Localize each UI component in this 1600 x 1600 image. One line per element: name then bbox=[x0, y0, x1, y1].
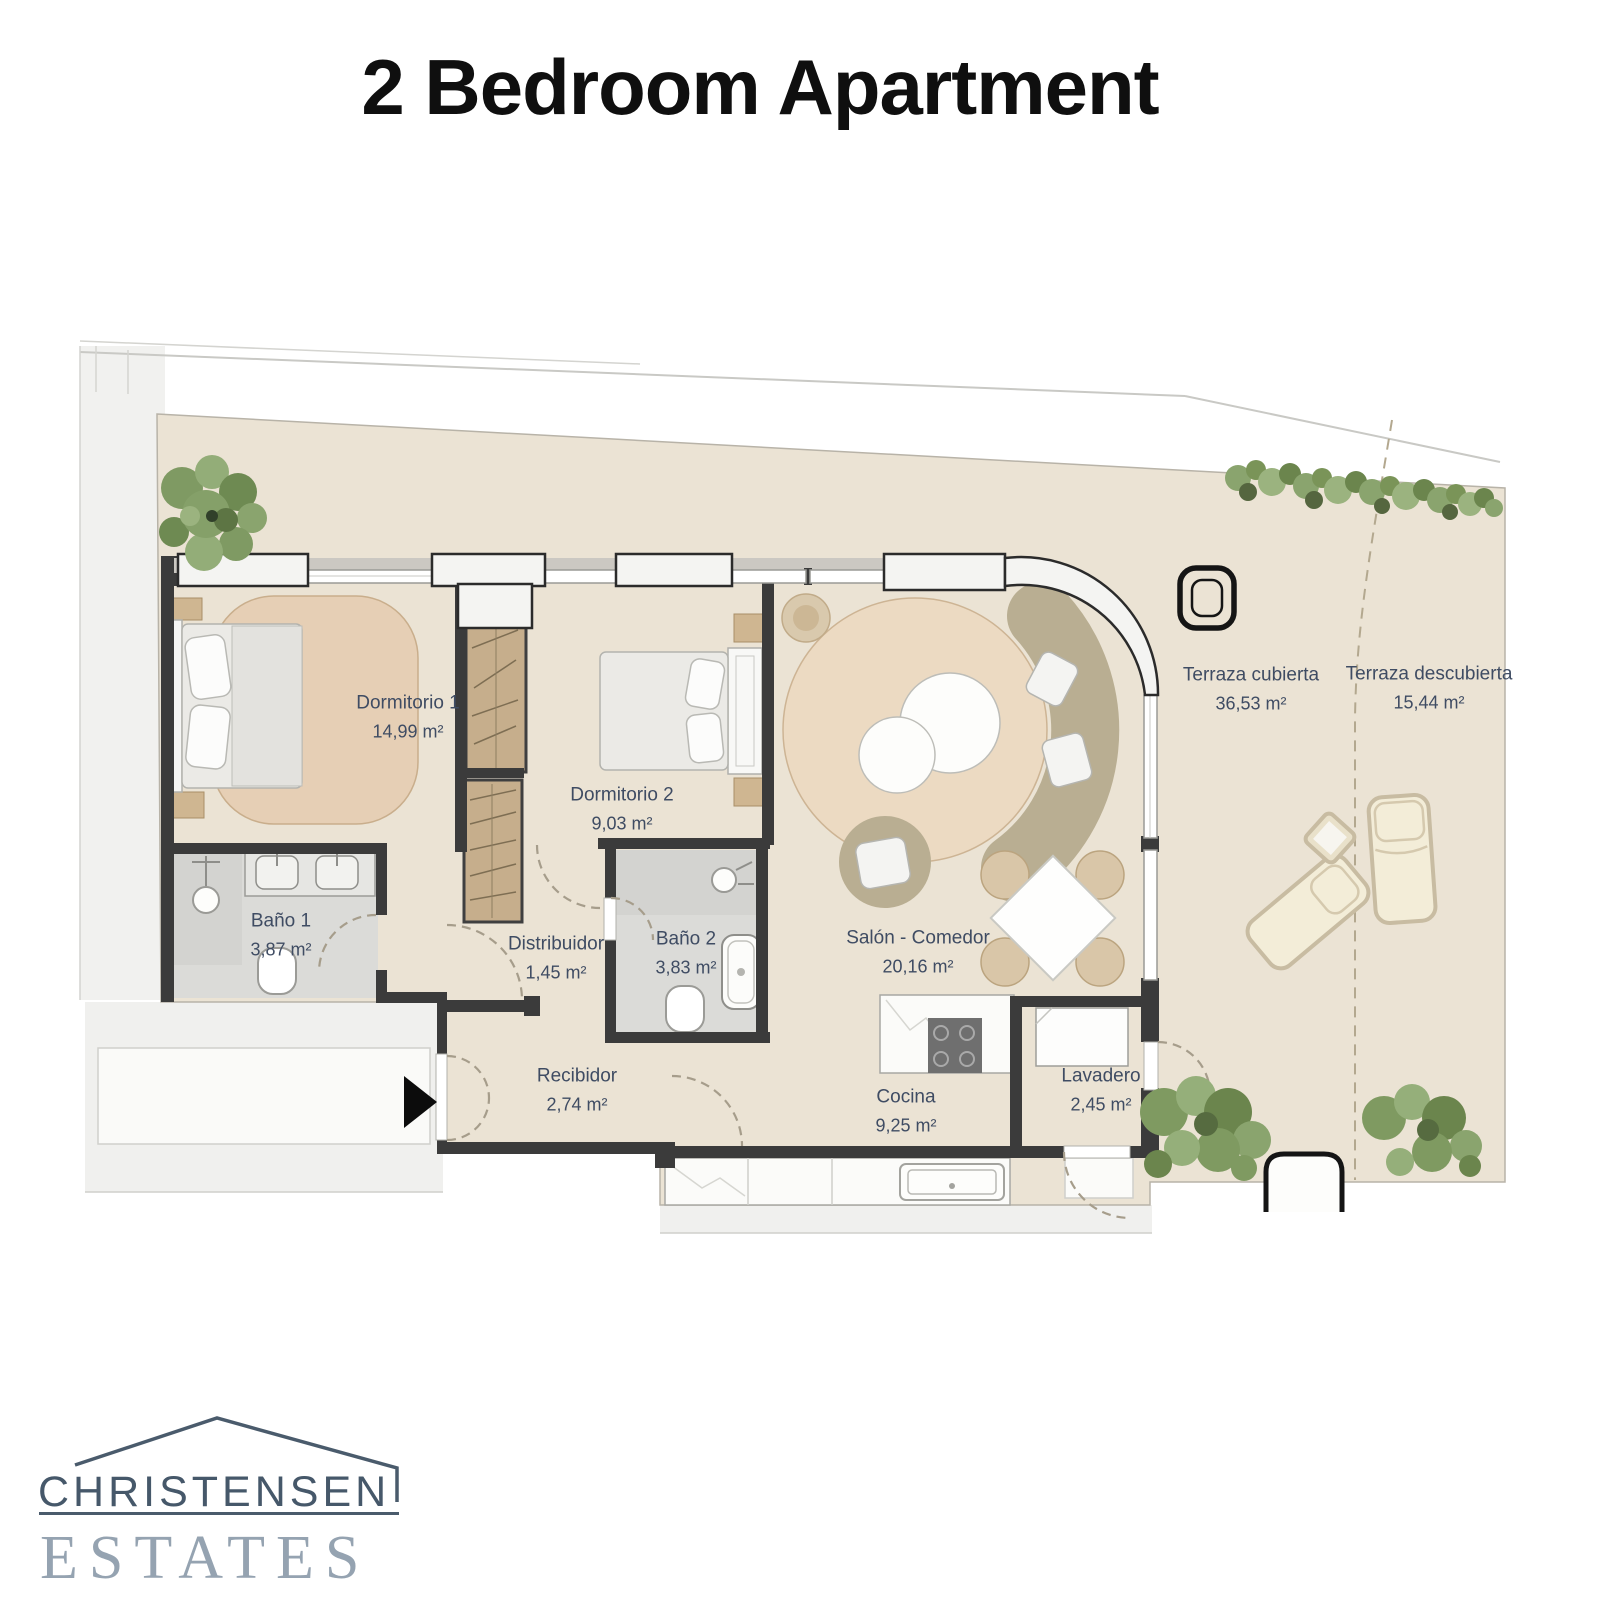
bed-1 bbox=[168, 598, 302, 818]
label-dormitorio-2: Dormitorio 2 9,03 m² bbox=[570, 781, 673, 838]
washing-machine bbox=[1036, 1008, 1128, 1066]
label-cocina: Cocina 9,25 m² bbox=[875, 1083, 936, 1140]
logo-suffix-text: ESTATES bbox=[40, 1523, 370, 1594]
label-bano-1: Baño 1 3,87 m² bbox=[250, 907, 311, 964]
wardrobe-closets bbox=[458, 596, 526, 922]
logo-brand-text: CHRISTENSEN bbox=[38, 1468, 390, 1517]
floorplan-page: 2 Bedroom Apartment bbox=[0, 0, 1600, 1600]
label-terraza-descubierta: Terraza descubierta 15,44 m² bbox=[1346, 660, 1513, 717]
label-distribuidor: Distribuidor 1,45 m² bbox=[508, 930, 604, 987]
label-bano-2: Baño 2 3,83 m² bbox=[655, 925, 716, 982]
label-recibidor: Recibidor 2,74 m² bbox=[537, 1062, 617, 1119]
floor-plan-canvas bbox=[0, 0, 1600, 1600]
company-logo: CHRISTENSEN ESTATES bbox=[38, 1392, 418, 1600]
label-dormitorio-1: Dormitorio 1 14,99 m² bbox=[356, 689, 459, 746]
label-terraza-cubierta: Terraza cubierta 36,53 m² bbox=[1183, 661, 1319, 718]
planter-symbol bbox=[1266, 1154, 1342, 1212]
label-salon-comedor: Salón - Comedor 20,16 m² bbox=[846, 924, 990, 981]
logo-divider bbox=[39, 1512, 399, 1515]
label-lavadero: Lavadero 2,45 m² bbox=[1061, 1062, 1140, 1119]
